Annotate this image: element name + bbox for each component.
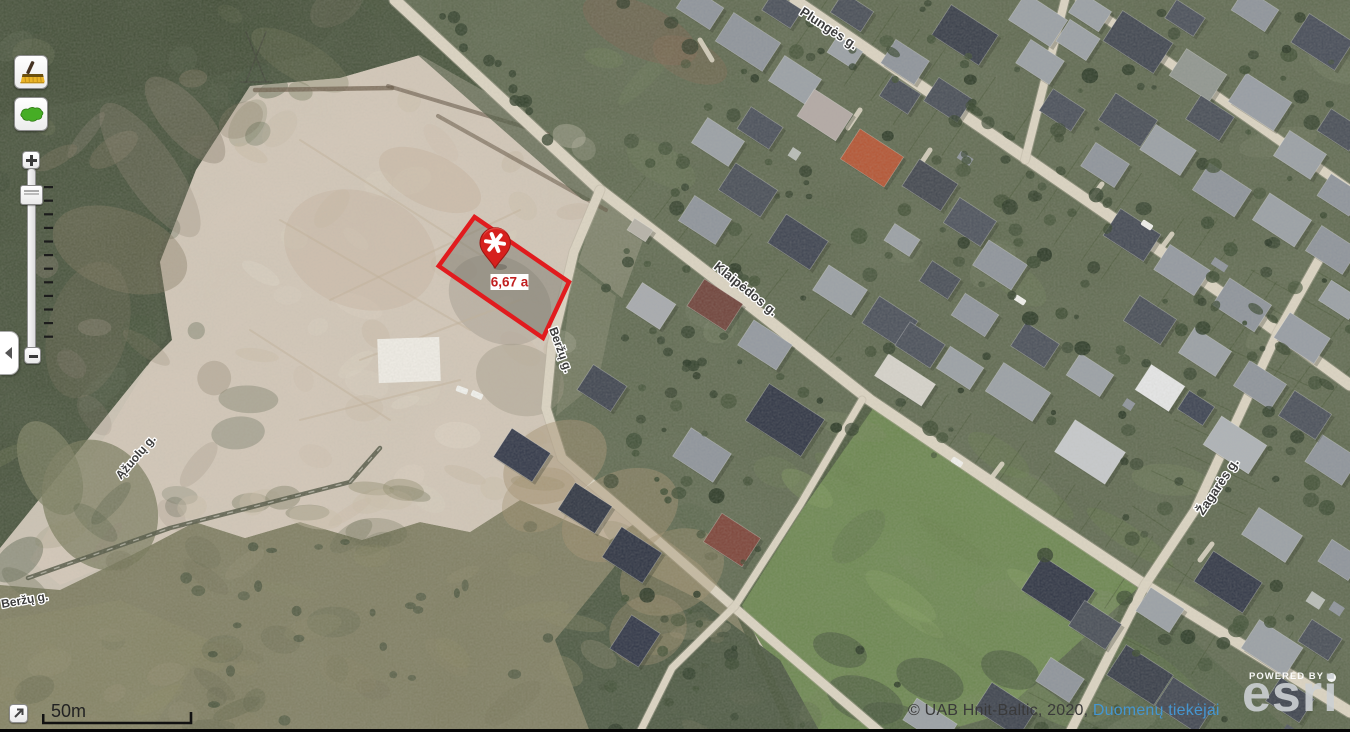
svg-text:6,67 a: 6,67 a [491, 275, 529, 290]
